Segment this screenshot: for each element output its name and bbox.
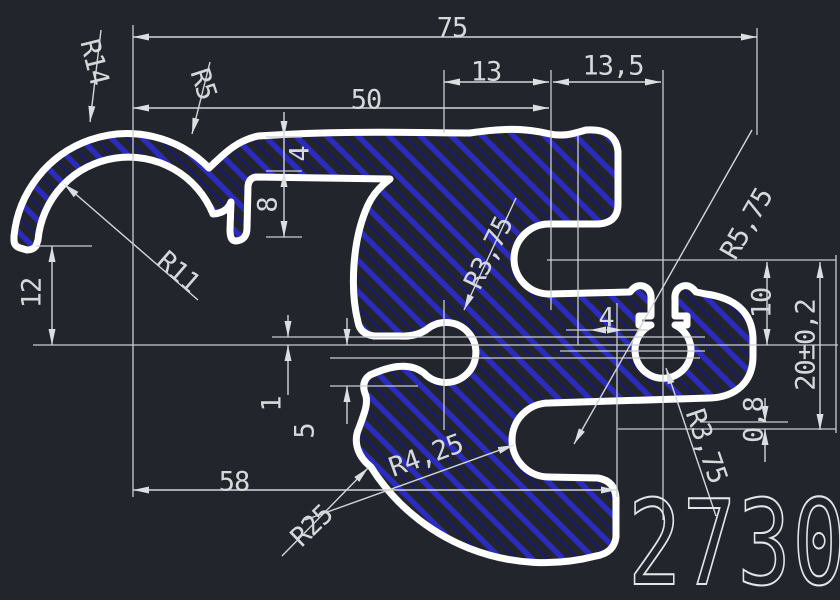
dim-1-label: 1 — [257, 396, 288, 411]
dim-13-label: 13 — [471, 57, 502, 88]
dim-50-label: 50 — [351, 85, 382, 116]
dim-13-5-label: 13,5 — [582, 51, 643, 82]
dim-4-flange-label: 4 — [285, 146, 316, 161]
dim-5-label: 5 — [290, 423, 321, 438]
radius-r14-label: R14 — [73, 36, 114, 88]
dim-58-label: 58 — [219, 467, 250, 498]
cad-viewport: 75 50 13 13,5 58 12 4 8 1 5 4 10 20±0,2 … — [0, 0, 840, 600]
dim-10-label: 10 — [747, 288, 778, 319]
radius-r5-label: R5 — [184, 65, 223, 104]
radius-r11-label: R11 — [151, 245, 206, 298]
dim-8-label: 8 — [253, 197, 284, 212]
dim-12-label: 12 — [17, 278, 48, 309]
dim-4-ear-label: 4 — [598, 303, 613, 334]
radius-r5-75-label: R5,75 — [715, 183, 780, 265]
part-number: 2730 — [628, 474, 840, 600]
dim-0-8-label: 0,8 — [739, 397, 770, 443]
dim-20-tol-label: 20±0,2 — [791, 299, 822, 391]
dim-75-label: 75 — [437, 13, 468, 44]
cad-canvas: 75 50 13 13,5 58 12 4 8 1 5 4 10 20±0,2 … — [0, 0, 840, 600]
